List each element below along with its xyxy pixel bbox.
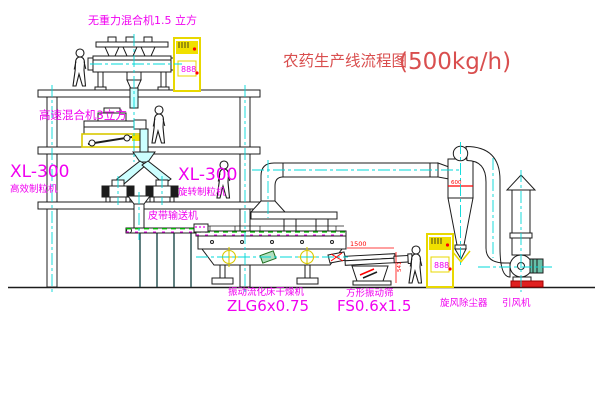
person-figure xyxy=(409,246,422,283)
dim-sieve-height: 541 xyxy=(397,262,403,273)
cyclone-inlet-transition xyxy=(438,163,449,179)
dim-sieve-length: 1500 xyxy=(350,240,367,248)
label-granulator-right-model: XL-300 xyxy=(178,165,237,185)
fan-base xyxy=(511,281,543,287)
label-granulator-left-name: 高效制粒机 xyxy=(10,183,58,195)
motor-block xyxy=(132,135,140,141)
diagram-title: 农药生产线流程图 (500kg/h) xyxy=(283,49,511,75)
gravity-mixer xyxy=(88,37,186,90)
label-belt-conveyor: 皮带输送机 xyxy=(148,209,198,222)
exhaust-duct xyxy=(261,163,449,201)
control-cabinet-upper: 888 xyxy=(174,38,200,91)
title-text: 农药生产线流程图 xyxy=(283,52,407,70)
dryer-feed-box xyxy=(194,224,208,232)
control-cabinet-lower: 888 xyxy=(427,234,453,287)
cad-flow-diagram: 888 888 无重力混合机1.5 立方 高速混合机3立方 XL-300 高效制… xyxy=(0,0,600,403)
splitter-funnel xyxy=(133,152,155,162)
indicator-light xyxy=(446,243,449,246)
floor-slab-lower xyxy=(38,202,260,209)
belt-conveyor xyxy=(126,228,202,287)
label-cyclone: 旋风除尘器 xyxy=(440,297,488,309)
person-figure xyxy=(73,49,86,86)
pipe-mixer-discharge xyxy=(140,129,148,153)
label-high-speed-mixer: 高速混合机3立方 xyxy=(39,108,127,122)
label-gravity-mixer: 无重力混合机1.5 立方 xyxy=(88,13,197,27)
label-granulator-left-model: XL-300 xyxy=(10,162,69,182)
indicator-light xyxy=(193,47,196,50)
title-capacity: (500kg/h) xyxy=(399,49,511,75)
person-figure xyxy=(152,106,165,143)
fluid-bed-dryer xyxy=(194,201,346,284)
cabinet-display: 888 xyxy=(434,261,449,270)
indicator-light xyxy=(195,71,198,74)
dim-cyclone: 600 xyxy=(451,180,462,186)
label-granulator-right-name: 旋转制粒机 xyxy=(178,186,226,198)
cabinet-display: 888 xyxy=(181,65,196,74)
indicator-light xyxy=(448,267,451,270)
diagram-canvas: 888 888 无重力混合机1.5 立方 高速混合机3立方 XL-300 高效制… xyxy=(0,0,600,403)
floor-slab-top xyxy=(38,90,260,97)
label-sieve-model: FS0.6x1.5 xyxy=(337,297,411,315)
label-dryer-model: ZLG6x0.75 xyxy=(227,297,309,315)
label-fan: 引风机 xyxy=(502,297,531,309)
